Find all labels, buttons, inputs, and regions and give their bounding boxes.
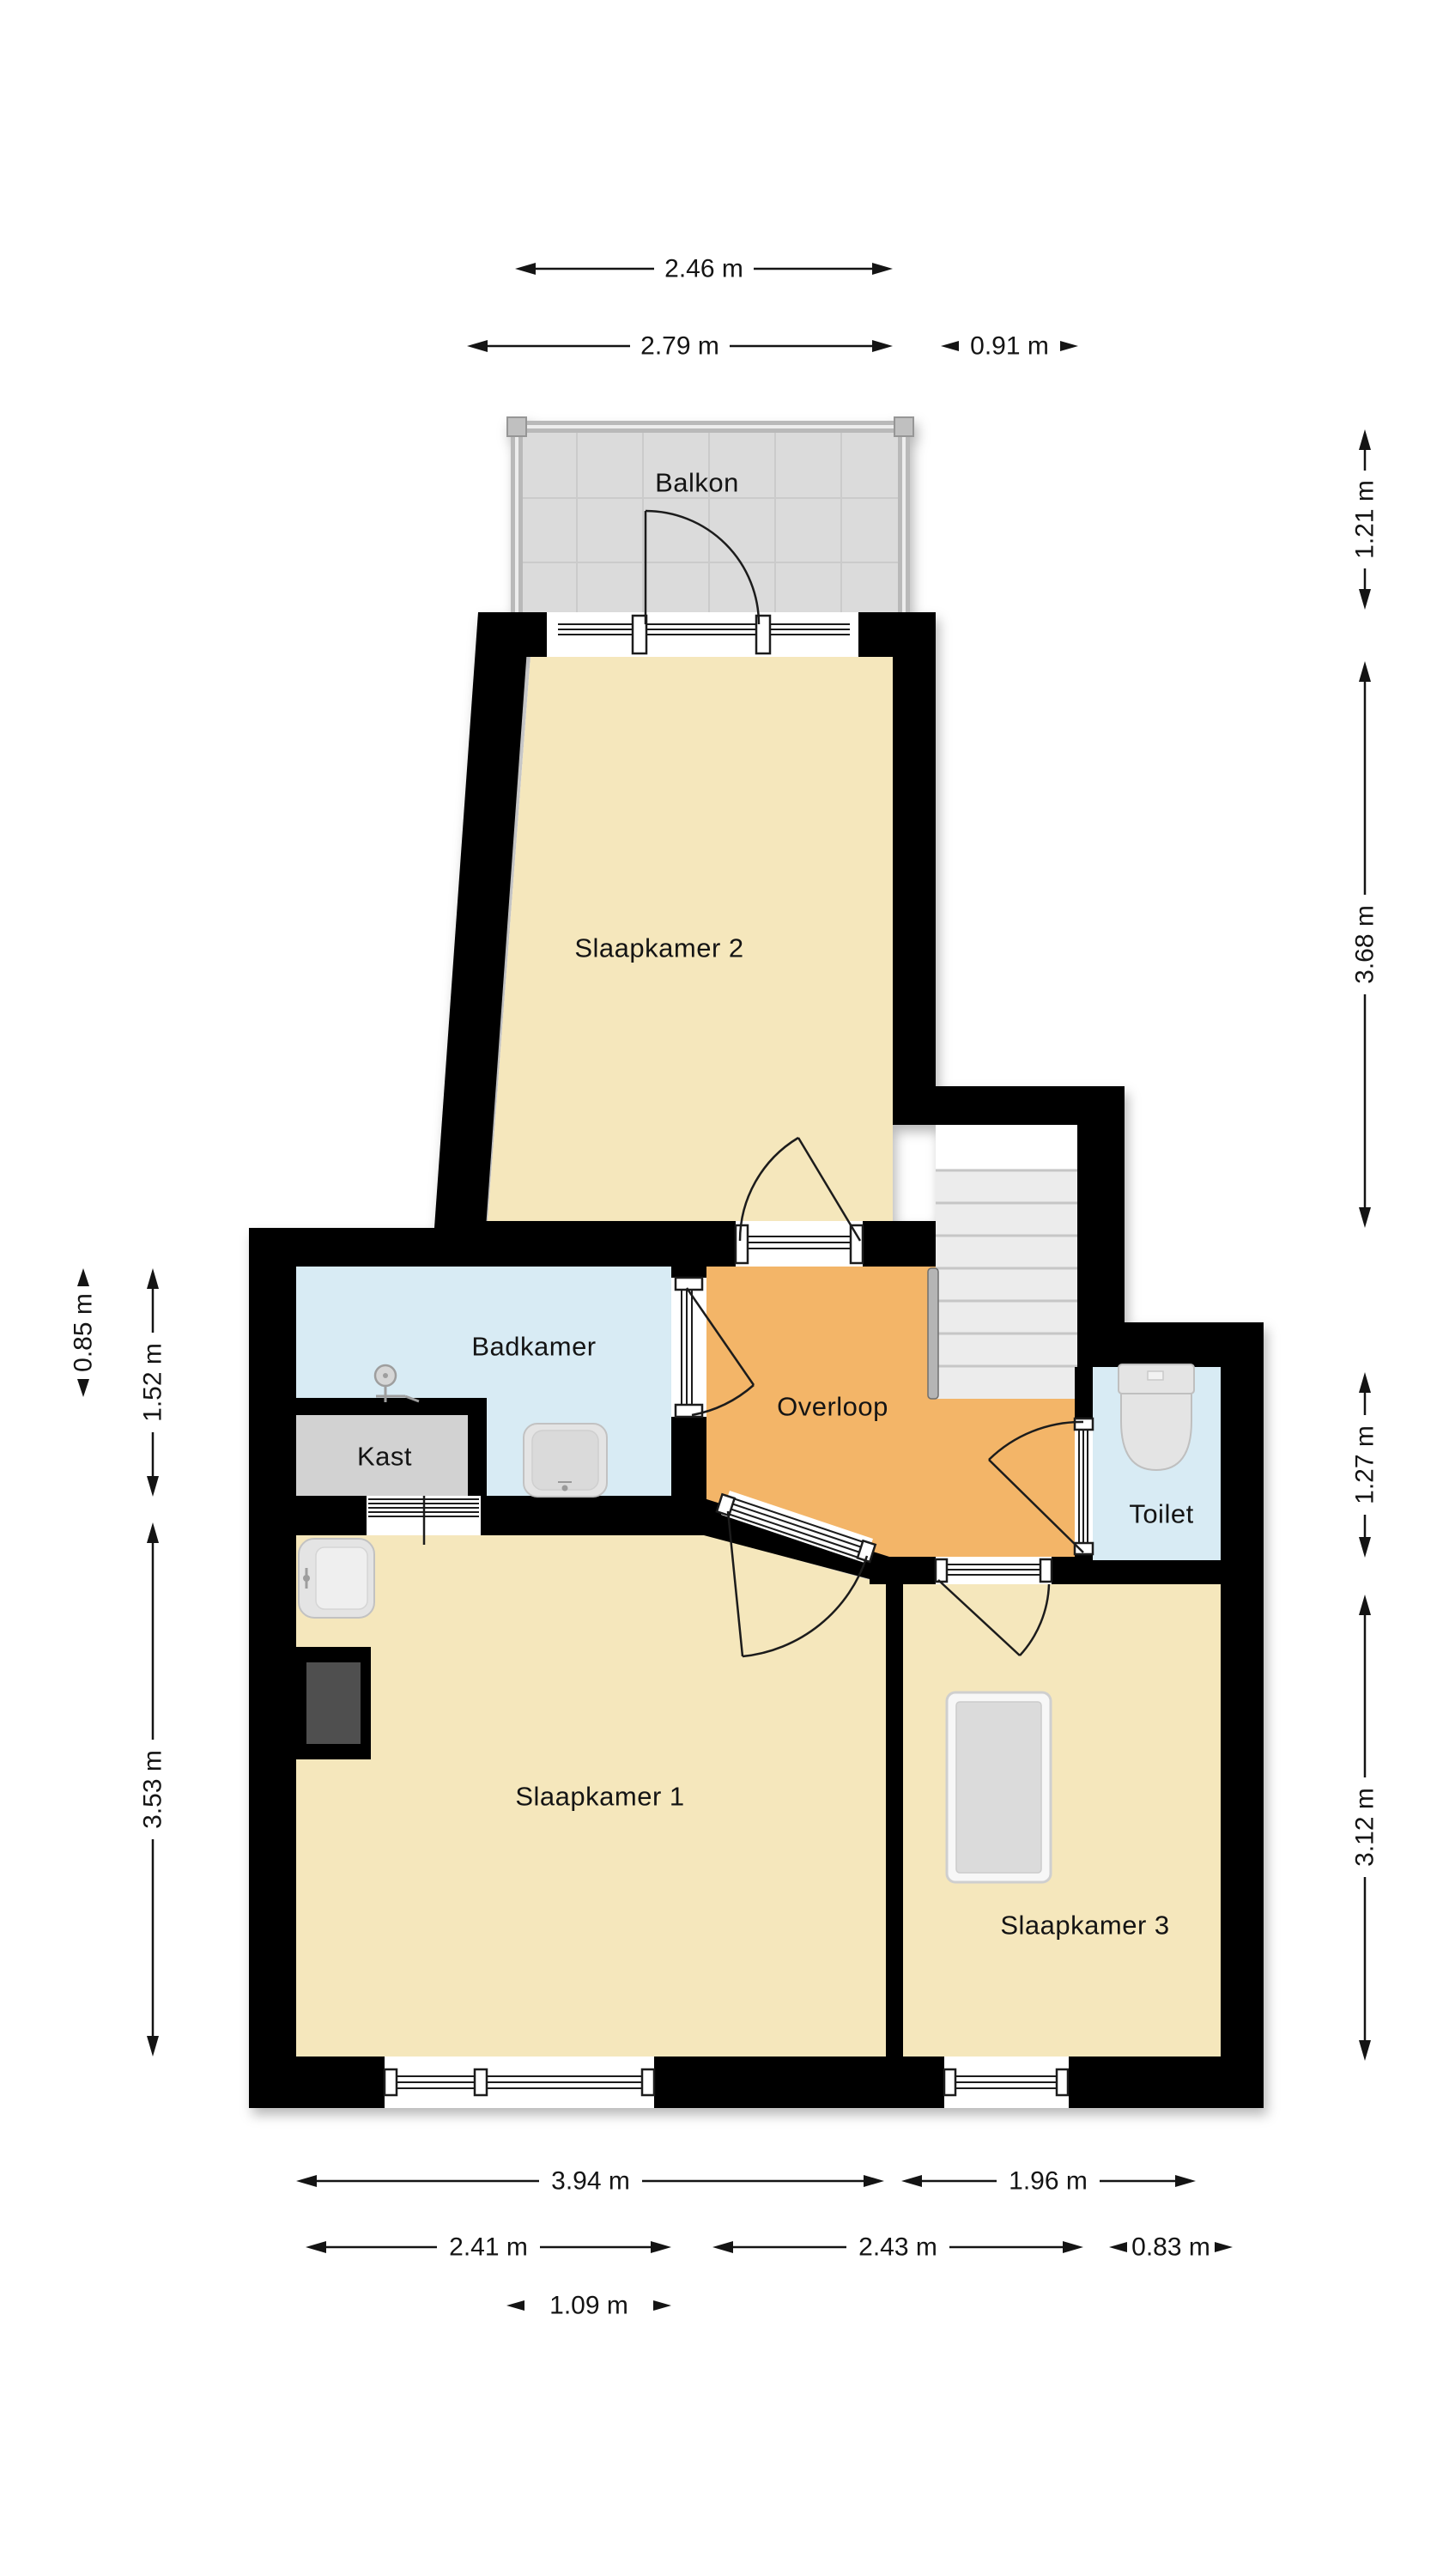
toilet-wc — [1119, 1364, 1194, 1470]
wall-segment — [468, 1415, 487, 1496]
dim-balcony-depth: 1.21 m — [1351, 429, 1379, 610]
dim-label: 3.94 m — [551, 2167, 630, 2196]
dim-label: 1.96 m — [1009, 2167, 1088, 2196]
dim-bedroom3-depth: 3.12 m — [1351, 1595, 1379, 2061]
room-label-badkamer: Badkamer — [471, 1332, 596, 1362]
washbasin-bathroom — [524, 1424, 607, 1497]
dim-bedroom2-depth: 3.68 m — [1351, 661, 1379, 1228]
dim-balcony-width: 2.46 m — [515, 255, 893, 283]
washbasin-bedroom-1 — [299, 1539, 374, 1618]
dim-landing-width: 2.43 m — [712, 2233, 1083, 2262]
stairs — [928, 1125, 1077, 1399]
wall-segment — [249, 1228, 482, 1267]
dim-label: 3.68 m — [1351, 905, 1379, 984]
dim-toilet-width: 0.83 m — [1109, 2233, 1233, 2262]
balcony-floor — [511, 421, 910, 612]
dim-label: 0.85 m — [70, 1293, 98, 1372]
floorplan-body — [249, 417, 1264, 2108]
dim-label: 1.27 m — [1351, 1425, 1379, 1504]
dim-toilet-depth: 1.27 m — [1351, 1372, 1379, 1558]
room-label-overloop: Overloop — [777, 1392, 888, 1422]
balcony — [507, 417, 913, 612]
chimney-niche — [296, 1647, 371, 1759]
rug-slaapkamer-3 — [947, 1692, 1051, 1882]
dim-label: 3.53 m — [139, 1750, 167, 1829]
dim-label: 0.91 m — [970, 332, 1049, 361]
dim-stairwell-width: 0.91 m — [941, 332, 1078, 361]
dim-bedroom2-width: 2.79 m — [467, 332, 893, 361]
dim-label: 2.41 m — [449, 2233, 528, 2262]
wall-segment — [296, 1398, 487, 1415]
dim-bedroom1-width: 3.94 m — [296, 2167, 884, 2196]
wall-segment — [886, 1584, 903, 2057]
wall-segment — [893, 612, 936, 1125]
wall-segment — [1093, 1560, 1221, 1584]
room-label-kast: Kast — [357, 1442, 412, 1472]
dim-label: 2.46 m — [664, 255, 743, 283]
dim-label: 3.12 m — [1351, 1788, 1379, 1867]
dim-label: 0.83 m — [1131, 2233, 1210, 2262]
wall-segment — [1221, 1367, 1264, 2108]
room-label-slaapkamer-2: Slaapkamer 2 — [574, 933, 743, 963]
room-label-balkon: Balkon — [655, 468, 739, 498]
wall-segment — [893, 1086, 1125, 1125]
dim-label: 1.09 m — [549, 2292, 628, 2320]
window-slaapkamer-3 — [944, 2057, 1069, 2108]
dim-bedroom3-width: 1.96 m — [901, 2167, 1196, 2196]
room-label-toilet: Toilet — [1129, 1499, 1193, 1529]
dim-bathroom-upper-depth: 0.85 m — [70, 1268, 98, 1397]
window-slaapkamer-1 — [385, 2057, 654, 2108]
room-label-slaapkamer-1: Slaapkamer 1 — [515, 1782, 684, 1812]
dim-label: 2.43 m — [858, 2233, 937, 2262]
wall-segment — [249, 1228, 296, 2108]
dim-closet-width: 1.09 m — [506, 2292, 671, 2320]
wall-segment — [1077, 1322, 1264, 1367]
dim-bathroom-depth: 1.52 m — [139, 1268, 167, 1497]
dim-label: 1.21 m — [1351, 480, 1379, 559]
dim-label: 2.79 m — [640, 332, 719, 361]
room-label-slaapkamer-3: Slaapkamer 3 — [1000, 1911, 1169, 1941]
wall-segment — [481, 1221, 936, 1267]
floorplan-canvas: Balkon Slaapkamer 2 Badkamer Kast Overlo… — [0, 0, 1449, 2576]
stair-handrail — [928, 1268, 938, 1399]
dim-bedroom1-depth: 3.53 m — [139, 1522, 167, 2057]
dim-bedroom1-inner-width: 2.41 m — [306, 2233, 671, 2262]
dim-label: 1.52 m — [139, 1343, 167, 1422]
floorplan-page: Balkon Slaapkamer 2 Badkamer Kast Overlo… — [0, 0, 1449, 2576]
